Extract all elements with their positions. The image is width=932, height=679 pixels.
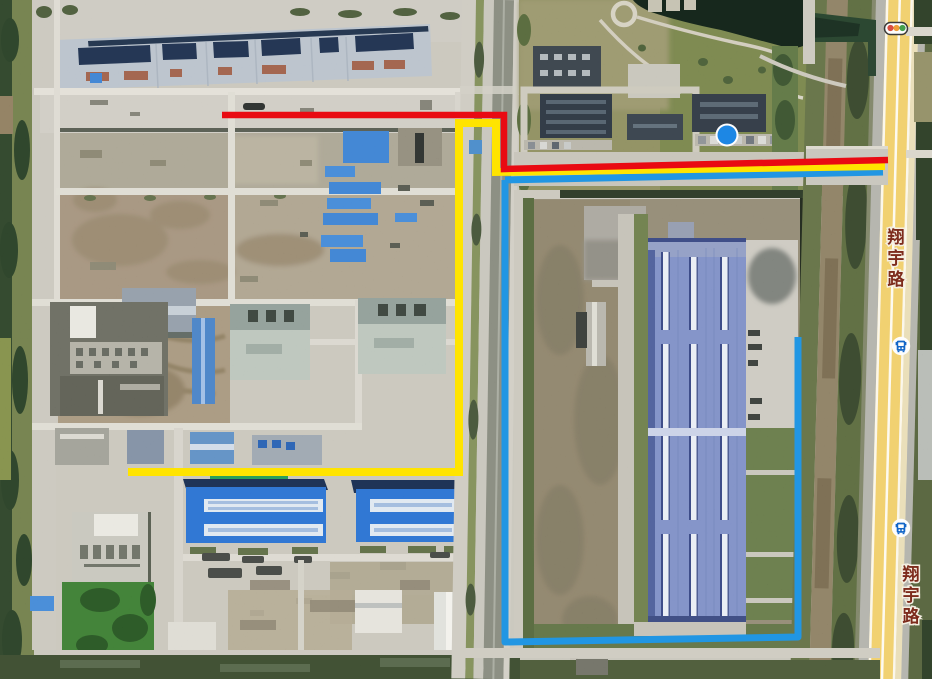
svg-text:翔: 翔 — [887, 227, 905, 247]
svg-text:宇: 宇 — [888, 248, 905, 268]
svg-text:路: 路 — [888, 269, 906, 289]
svg-text:宇: 宇 — [903, 585, 920, 605]
svg-text:翔: 翔 — [902, 564, 920, 584]
svg-text:路: 路 — [903, 606, 921, 626]
